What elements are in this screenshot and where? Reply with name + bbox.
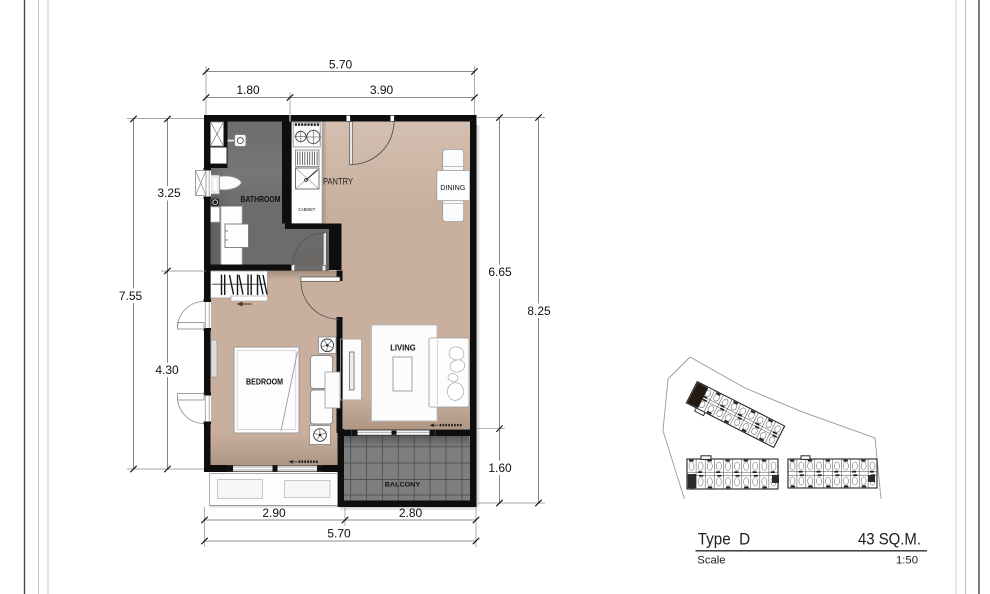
svg-text:1.80: 1.80 (236, 83, 260, 97)
svg-text:3.25: 3.25 (157, 186, 181, 200)
svg-text:4.30: 4.30 (155, 363, 179, 377)
svg-text:LIVING: LIVING (390, 342, 416, 352)
svg-text:7.55: 7.55 (119, 289, 143, 303)
svg-text:CABINET: CABINET (298, 207, 315, 212)
svg-text:Type D: Type D (698, 529, 751, 548)
svg-text:5.70: 5.70 (329, 58, 353, 72)
svg-text:8.25: 8.25 (527, 304, 551, 318)
svg-text:6.65: 6.65 (488, 265, 512, 279)
svg-text:1:50: 1:50 (896, 555, 918, 567)
svg-text:2.80: 2.80 (399, 506, 423, 520)
svg-text:43 SQ.M.: 43 SQ.M. (858, 529, 921, 548)
svg-text:DINING: DINING (440, 185, 465, 192)
svg-text:2.90: 2.90 (262, 506, 286, 520)
svg-text:PANTRY: PANTRY (323, 176, 353, 186)
svg-text:3.90: 3.90 (370, 83, 394, 97)
svg-text:1.60: 1.60 (488, 461, 512, 475)
svg-text:Scale: Scale (697, 555, 725, 567)
svg-text:BATHROOM: BATHROOM (241, 194, 281, 204)
svg-text:BEDROOM: BEDROOM (246, 376, 283, 386)
svg-text:5.70: 5.70 (327, 527, 351, 541)
svg-text:BALCONY: BALCONY (385, 482, 421, 489)
